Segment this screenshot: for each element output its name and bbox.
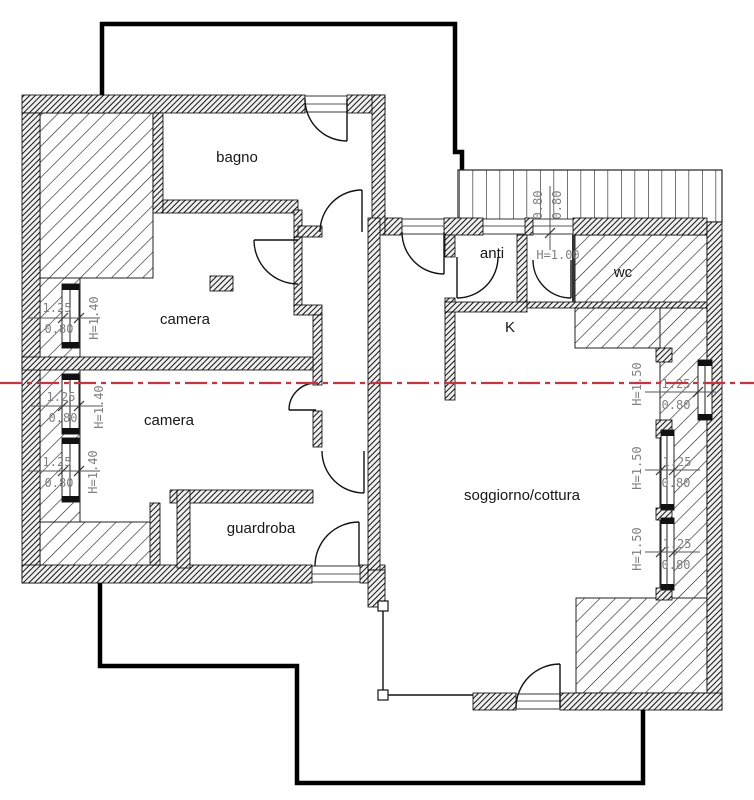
- entrance-sill: [402, 219, 444, 234]
- floor-plan-canvas: bagno camera camera guardroba anti wc K …: [0, 0, 754, 800]
- dim-right2-parapet: 0.80: [662, 476, 691, 490]
- wall-segment: [298, 226, 322, 237]
- wall-segment: [527, 302, 707, 308]
- wall-segment: [22, 113, 40, 583]
- wall-segment: [22, 565, 312, 583]
- stair-band-stripes: [458, 170, 722, 222]
- dim-left1-parapet: 0.80: [45, 322, 74, 336]
- low-height-area: [576, 598, 707, 693]
- dim-passage-left: 0.80: [531, 191, 545, 220]
- glazing-post: [378, 690, 388, 700]
- low-height-area: [40, 522, 153, 568]
- wall-segment: [150, 503, 160, 565]
- dim-left3-width: 1.25: [43, 455, 72, 469]
- wall-segment: [573, 218, 707, 235]
- wall-segment: [313, 315, 322, 385]
- wall-segment: [294, 237, 302, 307]
- wall-segment: [525, 218, 533, 235]
- low-height-area: [575, 308, 660, 348]
- label-wc: wc: [613, 264, 633, 281]
- dim-left1-width: 1.25: [43, 301, 72, 315]
- roof-window: [533, 219, 573, 234]
- wall-segment: [444, 218, 483, 235]
- wall-segment: [163, 200, 298, 213]
- label-soggiorno: soggiorno/cottura: [464, 487, 581, 504]
- dim-passage-height: H=1.00: [536, 248, 579, 262]
- low-height-area-wc: [575, 235, 707, 303]
- wall-segment: [170, 490, 313, 503]
- label-anti: anti: [480, 245, 504, 262]
- dim-left1-height: H=1.40: [87, 296, 101, 339]
- wall-segment: [445, 298, 455, 400]
- dim-left2-height: H=1.40: [92, 385, 106, 428]
- wall-pier: [210, 276, 233, 291]
- floor-plan-drawing: bagno camera camera guardroba anti wc K …: [0, 0, 754, 800]
- dim-right3-height: H=1.50: [630, 527, 644, 570]
- dim-left2-parapet: 0.80: [49, 411, 78, 425]
- wall-segment: [517, 235, 527, 303]
- label-bagno: bagno: [216, 149, 258, 166]
- label-camera-2: camera: [144, 412, 195, 429]
- wall-segment: [707, 222, 722, 710]
- dim-right3-width: 1.25: [663, 537, 692, 551]
- wall-segment: [385, 218, 402, 235]
- wall-segment: [445, 302, 527, 312]
- wall-segment: [560, 693, 722, 710]
- low-height-area: [40, 113, 153, 278]
- stair-band: [458, 170, 722, 222]
- label-guardroba: guardroba: [227, 520, 296, 537]
- wall-segment: [22, 357, 313, 370]
- wall-segment: [313, 411, 322, 447]
- wall-segment: [153, 113, 163, 213]
- dim-left3-height: H=1.40: [86, 450, 100, 493]
- dim-right2-width: 1.25: [663, 455, 692, 469]
- wall-segment: [22, 95, 305, 113]
- label-camera-1: camera: [160, 311, 211, 328]
- dim-left2-width: 1.25: [47, 390, 76, 404]
- dim-right3-parapet: 0.80: [662, 558, 691, 572]
- label-kitchen: K: [505, 319, 515, 336]
- door-sill: [516, 694, 560, 709]
- dim-left3-parapet: 0.80: [45, 476, 74, 490]
- wall-segment: [445, 235, 455, 257]
- wall-segment: [294, 305, 322, 315]
- roof-window: [483, 219, 525, 234]
- dim-right1-parapet: 0.80: [662, 398, 691, 412]
- wall-segment: [177, 490, 190, 568]
- wall-segment: [368, 218, 380, 570]
- wall-segment: [572, 235, 575, 302]
- window-jamb: [656, 348, 672, 362]
- dim-right2-height: H=1.50: [630, 446, 644, 489]
- wall-segment: [473, 693, 516, 710]
- dim-passage-right: 0.80: [550, 191, 564, 220]
- wall-segment: [372, 95, 385, 235]
- glazing-post: [378, 601, 388, 611]
